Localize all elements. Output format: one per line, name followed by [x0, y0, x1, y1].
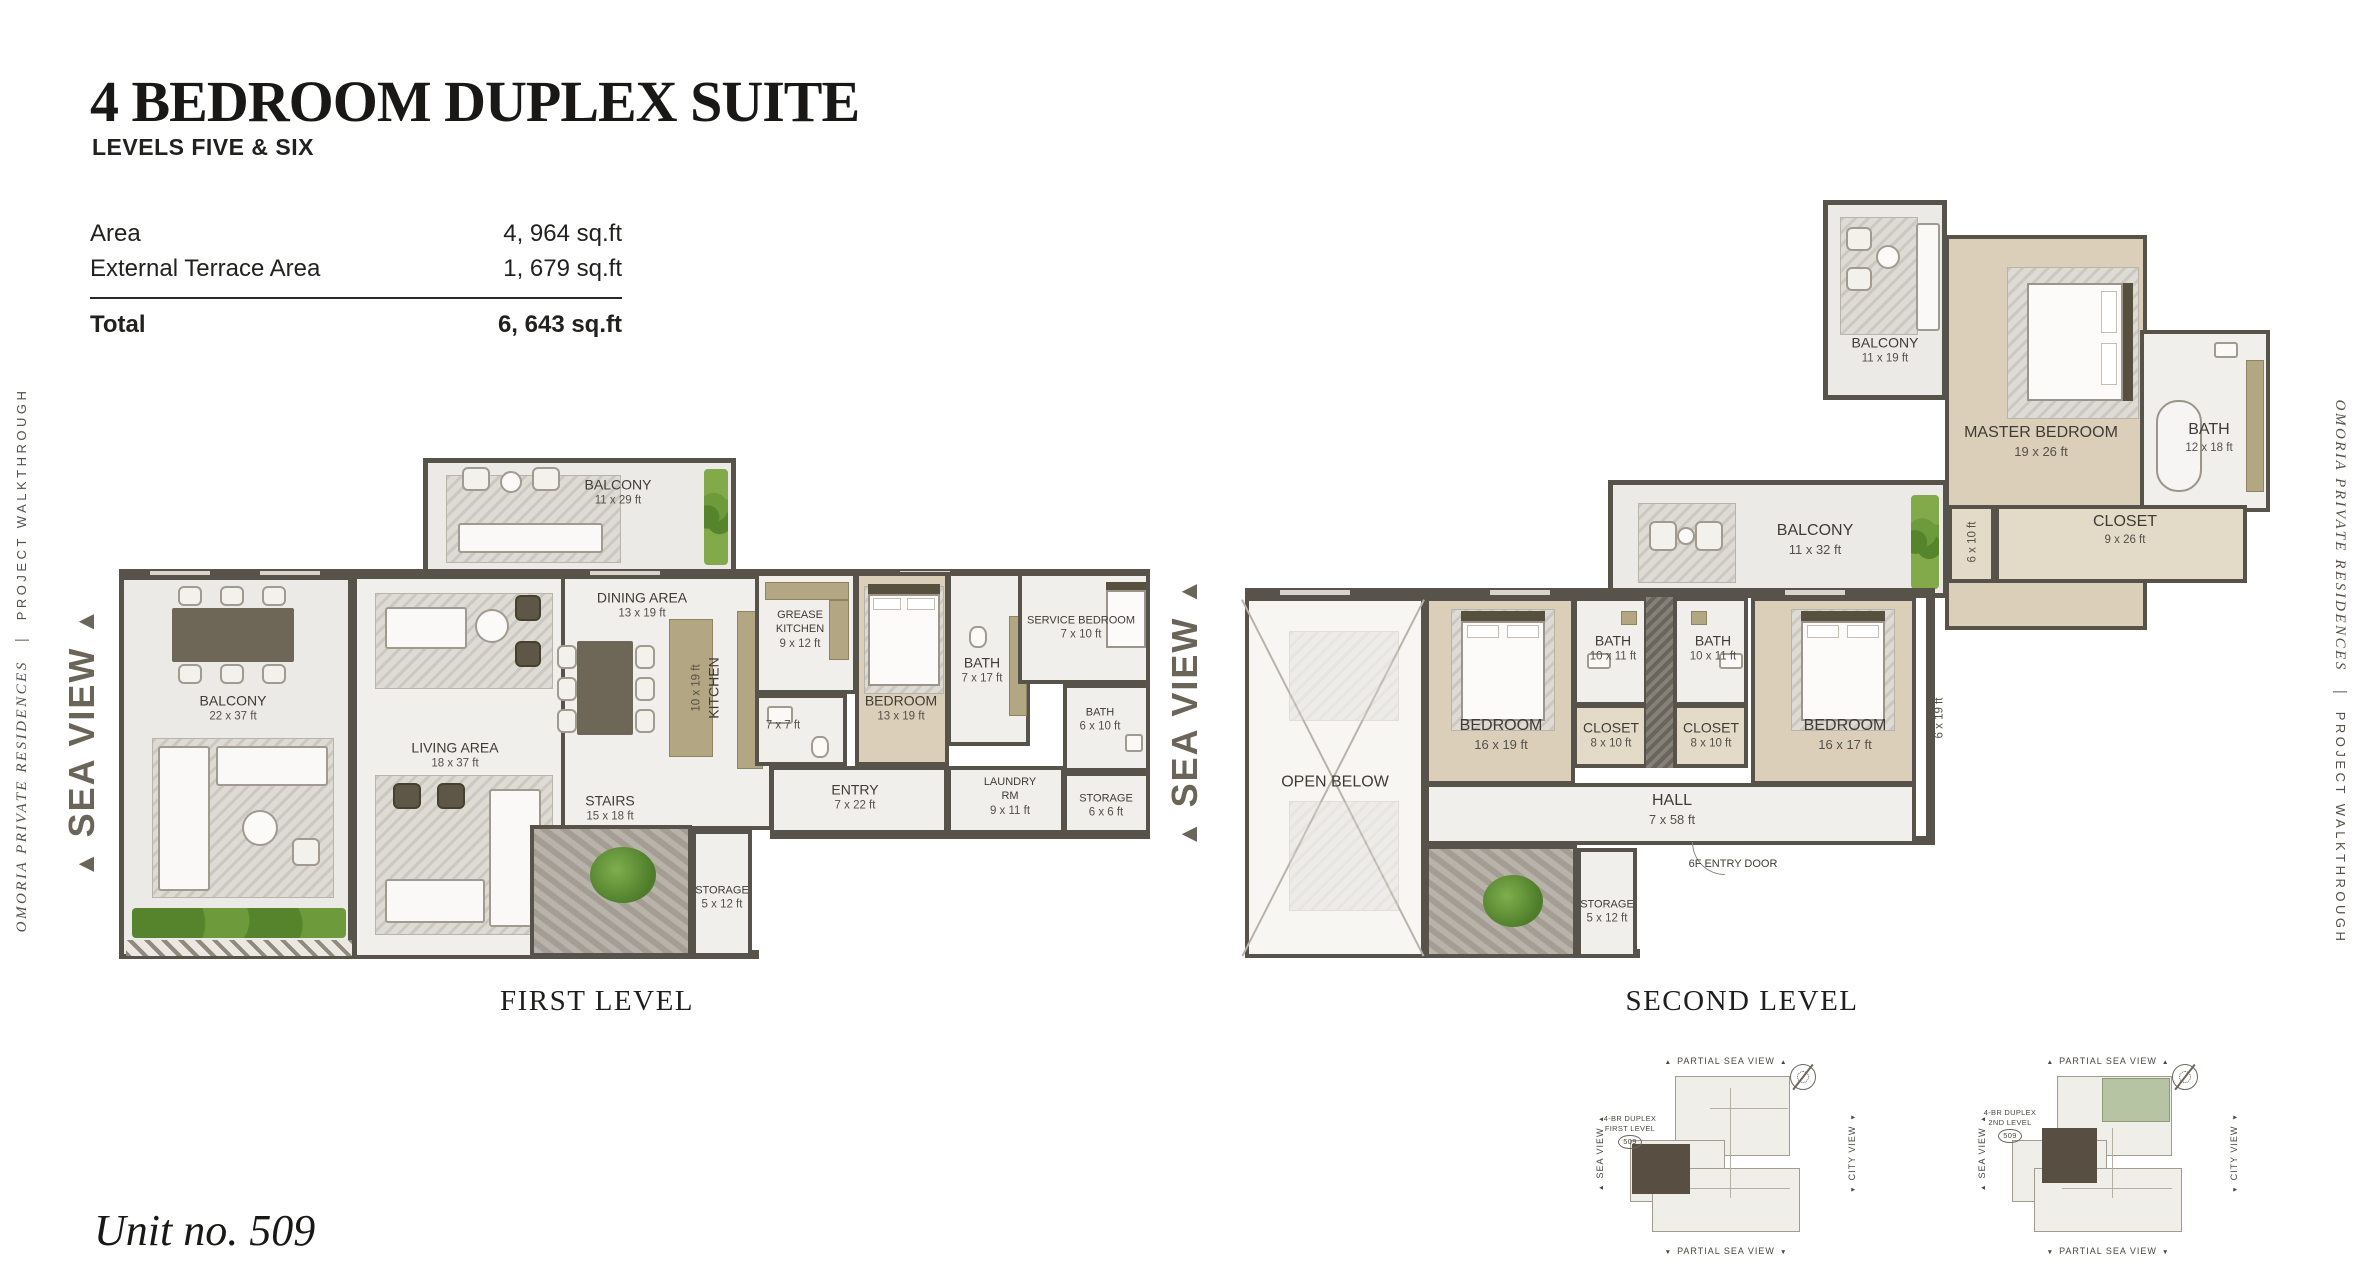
room-label-balcony-top: BALCONY 11 x 29 ft — [585, 475, 652, 508]
footprint-line — [2112, 1128, 2113, 1198]
outdoor-sofa — [458, 523, 603, 553]
room-label-bath-left: BATH 10 x 11 ft — [1590, 631, 1636, 664]
down-triangle-icon — [2047, 1246, 2054, 1256]
tree — [590, 847, 656, 903]
first-level-caption: FIRST LEVEL — [500, 985, 694, 1018]
room-label-upper-balcony: BALCONY 11 x 19 ft — [1852, 333, 1919, 366]
pillow — [1467, 625, 1499, 638]
room-label-closet-right: CLOSET 8 x 10 ft — [1683, 718, 1739, 751]
planter — [704, 469, 728, 565]
room-label-stairs: STAIRS 15 x 18 ft — [585, 791, 635, 824]
total-value: 6, 643 sq.ft — [498, 311, 622, 339]
unit-highlight — [1632, 1144, 1690, 1194]
coffee-table — [242, 810, 278, 846]
counter — [765, 582, 849, 600]
room-label-master-bath: BATH 12 x 18 ft — [2185, 420, 2232, 456]
armchair — [393, 783, 421, 809]
bedroom-left — [1425, 597, 1575, 785]
headboard — [868, 584, 940, 594]
room-label-main-balcony: BALCONY 11 x 32 ft — [1777, 521, 1853, 559]
chair — [635, 677, 655, 701]
pillow — [2101, 343, 2117, 385]
room-label-kitchen: 10 x 19 ft KITCHEN — [689, 657, 722, 718]
room-label-bedroom-right: BEDROOM 16 x 17 ft — [1804, 716, 1887, 754]
dim-label-6x10: 6 x 10 ft — [1966, 522, 1981, 563]
sink — [1125, 734, 1143, 752]
toilet — [811, 736, 829, 758]
up-triangle-icon — [2047, 1056, 2054, 1066]
room-label-dining: DINING AREA 13 x 19 ft — [597, 588, 687, 621]
shower — [1621, 611, 1637, 625]
sea-view-label: SEA VIEW — [61, 647, 103, 838]
second-level-plan: BALCONY 11 x 19 ft MASTER BEDROOM 19 x 2… — [1240, 190, 2300, 980]
room-label-storage-second: STORAGE 5 x 12 ft — [1580, 897, 1634, 926]
armchair — [515, 641, 541, 667]
second-level-caption: SECOND LEVEL — [1625, 985, 1858, 1018]
key-plan-first-level: PARTIAL SEA VIEW PARTIAL SEA VIEW SEA VI… — [1590, 1048, 1862, 1260]
room-label-grease-kitchen: GREASE KITCHEN 9 x 12 ft — [760, 608, 840, 652]
down-triangle-icon — [1780, 1246, 1787, 1256]
headboard — [1106, 582, 1146, 590]
bedroom-first — [855, 572, 949, 766]
up-triangle-icon — [2162, 1056, 2169, 1066]
room-label-master: MASTER BEDROOM 19 x 26 ft — [1964, 423, 2118, 461]
terrace-balcony — [119, 575, 353, 959]
upper-balcony — [1823, 200, 1947, 400]
room-label-bath2: BATH 6 x 10 ft — [1080, 705, 1121, 734]
chaise — [385, 607, 467, 649]
pillow — [1507, 625, 1539, 638]
chair — [635, 645, 655, 669]
city-view-side: CITY VIEW — [2229, 1113, 2239, 1193]
balcony-top — [423, 458, 736, 576]
chair — [220, 586, 244, 606]
sea-view-rail-left: SEA VIEW — [61, 607, 103, 877]
area-label: Area — [90, 220, 141, 248]
outdoor-sofa — [158, 746, 210, 891]
up-triangle-icon — [1595, 1184, 1605, 1191]
room-label-terrace: BALCONY 22 x 37 ft — [200, 691, 267, 724]
chair — [462, 467, 490, 491]
dim-label-6x19: 6 x 19 ft — [1933, 698, 1948, 739]
left-triangle-icon — [61, 607, 103, 635]
chair — [557, 645, 577, 669]
unit-number: Unit no. 509 — [94, 1205, 315, 1256]
roof-terrace-highlight — [2102, 1078, 2170, 1122]
unit-highlight — [2042, 1128, 2097, 1183]
pillow — [1847, 625, 1879, 638]
shaft — [1646, 597, 1675, 768]
area-row: Area 4, 964 sq.ft — [90, 220, 622, 248]
ghost-furniture — [1289, 631, 1399, 721]
chair — [178, 664, 202, 684]
room-label-bedroom1: BEDROOM 13 x 19 ft — [865, 691, 937, 724]
pillow — [907, 598, 935, 610]
area-value: 4, 964 sq.ft — [503, 220, 622, 248]
hedge — [132, 908, 346, 938]
footprint-line — [1710, 1108, 1788, 1109]
chair — [635, 709, 655, 733]
window — [1785, 590, 1845, 595]
chair — [532, 467, 560, 491]
key-plan-second-level: PARTIAL SEA VIEW PARTIAL SEA VIEW SEA VI… — [1972, 1048, 2244, 1260]
area-table: Area 4, 964 sq.ft External Terrace Area … — [90, 220, 622, 339]
room-label-bath1: BATH 7 x 17 ft — [962, 653, 1003, 686]
stairs-second — [1425, 845, 1577, 958]
down-triangle-icon — [1847, 1113, 1857, 1120]
room-label-master-closet: CLOSET 9 x 26 ft — [2093, 512, 2157, 548]
outdoor-sofa — [216, 746, 328, 786]
tree — [1483, 875, 1543, 927]
chair — [1846, 267, 1872, 291]
brand-tagline: PROJECT WALKTHROUGH — [14, 388, 29, 621]
chair — [1846, 227, 1872, 251]
entry-door-label: 6F ENTRY DOOR — [1689, 857, 1778, 871]
room-label-entry: ENTRY 7 x 22 ft — [831, 780, 878, 813]
compass-icon — [2172, 1064, 2198, 1090]
terrace-label: External Terrace Area — [90, 255, 320, 283]
room-label-hall: HALL 7 x 58 ft — [1649, 791, 1695, 829]
up-triangle-icon — [1665, 1056, 1672, 1066]
footprint-line — [1730, 1088, 1731, 1198]
footprint-line — [2062, 1188, 2172, 1189]
headboard — [1461, 611, 1545, 621]
room-label-bath-right: BATH 10 x 11 ft — [1690, 631, 1736, 664]
room-label-storage2: STORAGE 5 x 12 ft — [695, 883, 749, 912]
stairs-terrace — [530, 825, 692, 957]
headboard — [2123, 283, 2133, 401]
room-label-closet-left: CLOSET 8 x 10 ft — [1583, 718, 1639, 751]
chair — [1695, 521, 1723, 551]
side-table — [1677, 527, 1695, 545]
room-label-bedroom-left: BEDROOM 16 x 19 ft — [1460, 716, 1543, 754]
toilet — [2214, 342, 2238, 358]
window — [1280, 590, 1350, 595]
chair — [178, 586, 202, 606]
terrace-row: External Terrace Area 1, 679 sq.ft — [90, 255, 622, 283]
down-triangle-icon — [2162, 1246, 2169, 1256]
shower — [1691, 611, 1707, 625]
partial-sea-view-bottom: PARTIAL SEA VIEW — [2047, 1246, 2170, 1256]
sea-view-label: SEA VIEW — [1164, 617, 1206, 808]
sea-view-rail-middle: SEA VIEW — [1164, 577, 1206, 847]
pillow — [873, 598, 901, 610]
room-label-living: LIVING AREA 18 x 37 ft — [411, 738, 498, 771]
key-plan-unit-label: 4-BR DUPLEX 2ND LEVEL 509 — [1980, 1108, 2040, 1143]
terrace-value: 1, 679 sq.ft — [503, 255, 622, 283]
sofa — [385, 879, 485, 923]
planter — [1911, 495, 1939, 589]
armchair — [437, 783, 465, 809]
first-level-plan: BALCONY 11 x 29 ft — [110, 450, 1165, 1015]
armchair — [515, 595, 541, 621]
side-table — [1876, 245, 1900, 269]
round-table — [475, 609, 509, 643]
total-row: Total 6, 643 sq.ft — [90, 311, 622, 339]
footprint-line — [1680, 1188, 1790, 1189]
left-triangle-icon — [1164, 819, 1206, 847]
page-title: 4 BEDROOM DUPLEX SUITE — [90, 68, 859, 135]
brand-divider: | — [13, 638, 30, 642]
paving — [126, 940, 352, 956]
brand-rail-left: OMORIA PRIVATE RESIDENCES|PROJECT WALKTH… — [13, 388, 31, 933]
chair — [220, 664, 244, 684]
key-plan-unit-label: 4-BR DUPLEX FIRST LEVEL 509 — [1598, 1114, 1662, 1149]
room-label-storage1: STORAGE 6 x 6 ft — [1079, 791, 1133, 820]
down-triangle-icon — [1847, 1185, 1857, 1192]
left-triangle-icon — [61, 849, 103, 877]
room-label-service-bedroom: SERVICE BEDROOM 7 x 10 ft — [1027, 613, 1135, 642]
partial-sea-view-top: PARTIAL SEA VIEW — [1665, 1056, 1788, 1066]
brand-divider: | — [2332, 690, 2349, 694]
chair — [557, 709, 577, 733]
brochure-page: 4 BEDROOM DUPLEX SUITE LEVELS FIVE & SIX… — [0, 0, 2368, 1286]
dining-table — [577, 641, 633, 735]
down-triangle-icon — [2229, 1113, 2239, 1120]
partial-sea-view-top: PARTIAL SEA VIEW — [2047, 1056, 2170, 1066]
compass-icon — [1790, 1064, 1816, 1090]
outdoor-dining-table — [172, 608, 294, 662]
up-triangle-icon — [1977, 1184, 1987, 1191]
bedroom-right — [1751, 597, 1916, 785]
headboard — [1801, 611, 1885, 621]
up-triangle-icon — [1780, 1056, 1787, 1066]
city-view-side: CITY VIEW — [1847, 1113, 1857, 1193]
room-label-open-below: OPEN BELOW — [1281, 773, 1389, 794]
partial-sea-view-bottom: PARTIAL SEA VIEW — [1665, 1246, 1788, 1256]
total-label: Total — [90, 311, 146, 339]
brand-name: OMORIA PRIVATE RESIDENCES — [14, 660, 30, 932]
left-triangle-icon — [1164, 577, 1206, 605]
outdoor-sofa — [1916, 223, 1940, 331]
side-table — [500, 471, 522, 493]
table-divider — [90, 297, 622, 299]
room-label-powder: 7 x 7 ft — [766, 719, 801, 734]
ghost-furniture — [1289, 801, 1399, 911]
pillow — [1807, 625, 1839, 638]
brand-name: OMORIA PRIVATE RESIDENCES — [2332, 400, 2348, 672]
down-triangle-icon — [2229, 1185, 2239, 1192]
page-subtitle: LEVELS FIVE & SIX — [92, 134, 314, 161]
chair — [262, 664, 286, 684]
toilet — [969, 626, 987, 648]
room-label-laundry: LAUNDRY RM 9 x 11 ft — [974, 775, 1046, 819]
brand-rail-right: OMORIA PRIVATE RESIDENCES|PROJECT WALKTH… — [2331, 400, 2349, 945]
pillow — [2101, 291, 2117, 333]
down-triangle-icon — [1665, 1246, 1672, 1256]
chair — [1649, 521, 1677, 551]
chair — [557, 677, 577, 701]
brand-tagline: PROJECT WALKTHROUGH — [2333, 712, 2348, 945]
chair — [292, 838, 320, 866]
chair — [262, 586, 286, 606]
window — [1490, 590, 1550, 595]
vanity — [2246, 360, 2264, 492]
